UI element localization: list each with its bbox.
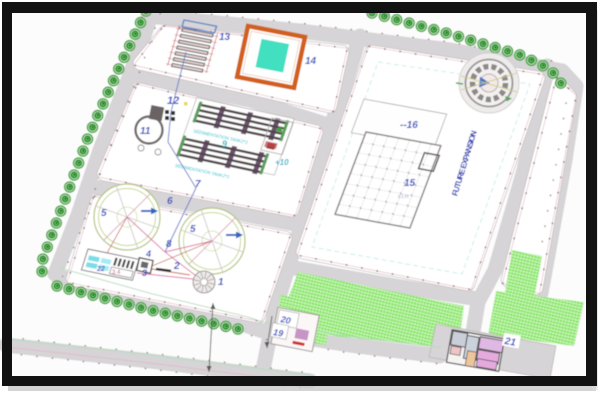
svg-text:1: 1 [218,277,224,288]
svg-text:14: 14 [305,56,317,67]
svg-text:6: 6 [167,196,173,207]
svg-text:2: 2 [173,261,180,272]
svg-text:+10: +10 [275,158,289,167]
svg-text:--16: --16 [400,120,418,131]
svg-text:9: 9 [222,139,227,149]
svg-text:7: 7 [195,179,201,190]
svg-text:s.t.m: s.t.m [398,194,409,200]
svg-text:11: 11 [140,126,151,137]
svg-text:5: 5 [101,208,107,219]
svg-text:15: 15 [404,178,416,189]
svg-text:8: 8 [166,239,172,250]
svg-text:13: 13 [219,32,231,43]
svg-text:3 4: 3 4 [112,270,121,276]
svg-text:19: 19 [272,327,284,339]
svg-text:4: 4 [145,249,151,259]
svg-text:20: 20 [279,314,292,326]
svg-text:22: 22 [96,266,105,273]
svg-text:21: 21 [503,336,517,349]
svg-text:5: 5 [190,224,196,235]
svg-text:3: 3 [142,268,147,278]
